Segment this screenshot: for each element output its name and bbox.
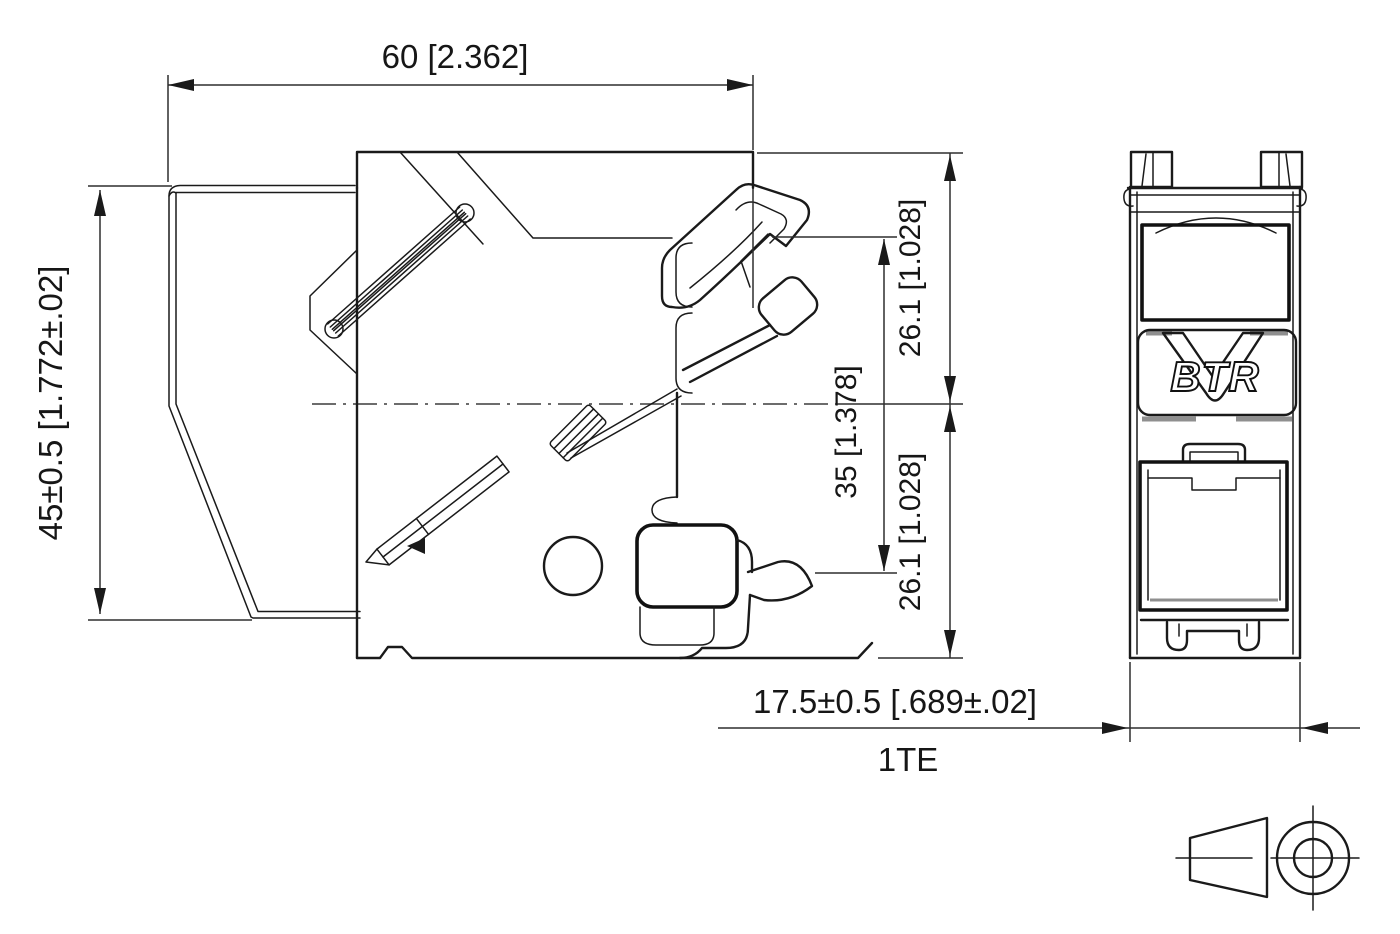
module-body-outline: [310, 152, 872, 658]
dim-label-lower-right: 26.1 [1.028]: [894, 453, 927, 611]
logo-panel: BTR: [1138, 330, 1296, 419]
top-rail-band: [1124, 188, 1306, 212]
right-slot-upper: [676, 243, 692, 307]
latch-hook: [662, 184, 809, 308]
btr-logo-text: BTR: [1170, 353, 1259, 400]
dim-label-middle-right: 35 [1.378]: [830, 365, 863, 498]
dim-label-height-left: 45±0.5 [1.772±.02]: [32, 266, 69, 541]
dim-label-width-top: 60 [2.362]: [382, 38, 529, 75]
dim-label-upper-right: 26.1 [1.028]: [894, 199, 927, 357]
front-outer-edges: [1130, 187, 1300, 658]
drawing-sheet: 60 [2.362] 45±0.5 [1.772±.02] 26.1 [1.02…: [0, 0, 1400, 934]
spring-blade: [366, 456, 509, 565]
mounting-hole: [544, 537, 602, 595]
release-lever: [567, 272, 822, 458]
front-view-drawing: BTR: [1124, 152, 1306, 658]
dimension-middle-right: 35 [1.378]: [772, 237, 897, 573]
top-notch-line: [457, 152, 672, 238]
dimension-height-left: 45±0.5 [1.772±.02]: [32, 186, 252, 620]
projection-symbol: [1176, 806, 1359, 910]
rail-clip: [637, 497, 812, 658]
side-view-drawing: [169, 152, 872, 658]
technical-drawing-canvas: 60 [2.362] 45±0.5 [1.772±.02] 26.1 [1.02…: [0, 0, 1400, 934]
dimension-module-width: 17.5±0.5 [.689±.02] 1TE: [718, 662, 1360, 778]
top-chamfer-line: [400, 152, 483, 244]
dimension-lower-right: 26.1 [1.028]: [878, 404, 963, 658]
contact-rod: [325, 204, 474, 338]
upper-jack-opening: [1142, 218, 1289, 320]
lower-jack-opening: [1140, 444, 1288, 620]
front-flap: [169, 186, 360, 619]
dimension-width-top: 60 [2.362]: [168, 38, 753, 308]
clip-window: [637, 525, 737, 607]
mounting-tabs: [1131, 152, 1302, 187]
dim-label-module-unit: 1TE: [878, 741, 939, 778]
bottom-tab: [1130, 622, 1300, 658]
left-step-profile: [310, 250, 357, 374]
dim-label-module-width: 17.5±0.5 [.689±.02]: [753, 683, 1037, 720]
